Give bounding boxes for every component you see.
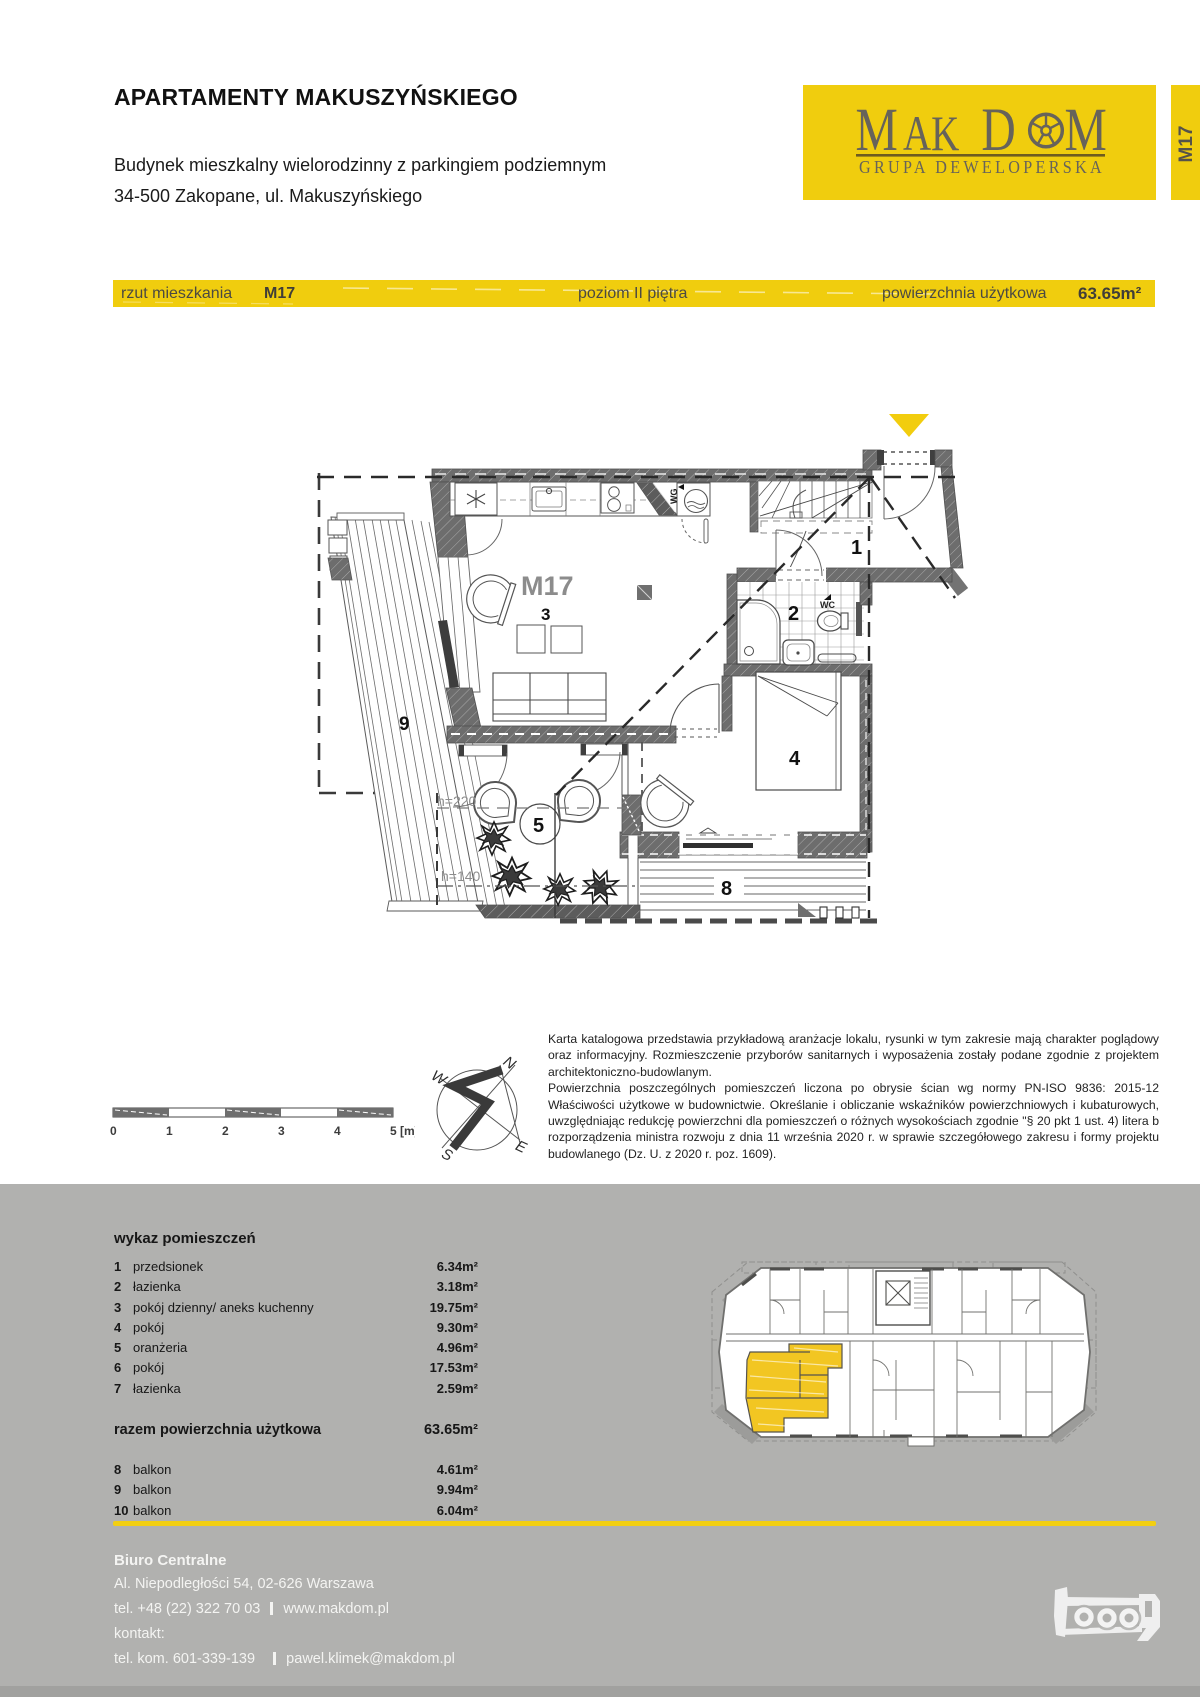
svg-text:M: M (1065, 95, 1107, 163)
svg-text:GRUPA DEWELOPERSKA: GRUPA DEWELOPERSKA (859, 157, 1105, 177)
svg-text:S: S (439, 1145, 455, 1165)
svg-text:WC: WC (820, 600, 835, 610)
svg-text:AK: AK (903, 105, 959, 161)
svg-text:1: 1 (851, 537, 862, 559)
svg-text:1: 1 (166, 1124, 173, 1138)
svg-text:h=140: h=140 (441, 868, 481, 884)
svg-text:N: N (500, 1053, 519, 1073)
svg-text:4: 4 (789, 748, 801, 770)
svg-text:WG: WG (669, 489, 679, 505)
svg-text:2: 2 (788, 603, 799, 625)
svg-text:0: 0 (110, 1124, 117, 1138)
svg-text:8: 8 (721, 878, 732, 900)
svg-text:h=220: h=220 (437, 793, 477, 809)
svg-text:9: 9 (399, 714, 410, 735)
svg-text:M17: M17 (521, 571, 574, 601)
svg-text:3: 3 (541, 605, 550, 624)
svg-text:5 [m]: 5 [m] (390, 1124, 415, 1138)
svg-text:4: 4 (334, 1124, 341, 1138)
svg-text:E: E (513, 1137, 530, 1157)
svg-text:3: 3 (278, 1124, 285, 1138)
svg-text:2: 2 (222, 1124, 229, 1138)
svg-text:D: D (981, 95, 1015, 163)
svg-text:5: 5 (533, 815, 544, 837)
svg-text:M: M (856, 95, 898, 163)
